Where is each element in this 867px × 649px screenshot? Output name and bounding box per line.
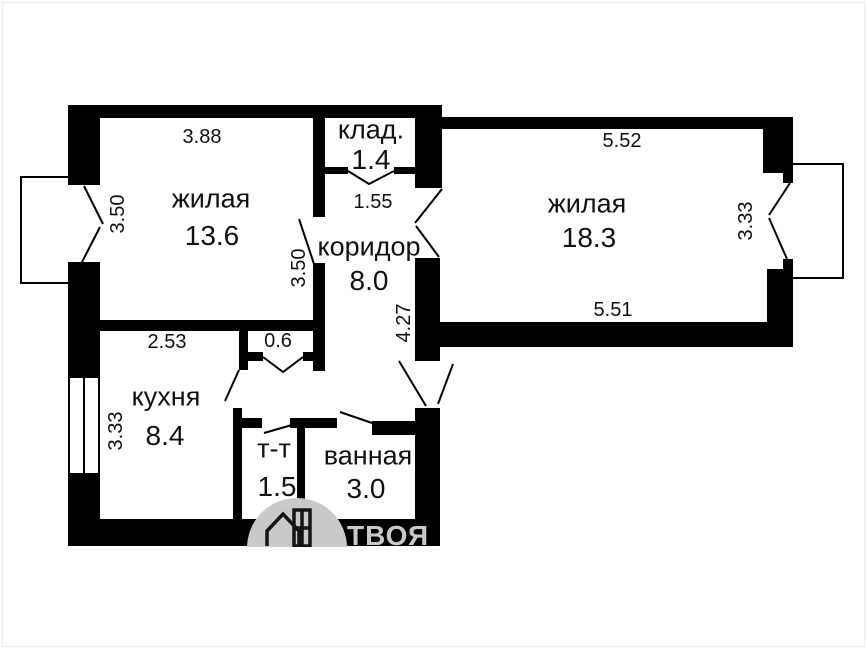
dimension-living2-top: 5.52 xyxy=(603,131,642,151)
room-label-corridor: коридор xyxy=(317,234,420,261)
door-swing-line xyxy=(263,357,303,372)
room-area-living2: 18.3 xyxy=(562,224,617,252)
door-swing-line xyxy=(82,227,100,262)
balcony-left-outline xyxy=(21,177,70,283)
door-window-balcony-lines xyxy=(0,0,867,649)
room-label-closet: клад. xyxy=(338,117,404,144)
dimension-closet-width: 1.55 xyxy=(354,192,393,212)
door-swing-line xyxy=(769,218,787,259)
dimension-corridor-upper: 3.50 xyxy=(289,249,309,288)
house-icon xyxy=(261,504,323,547)
door-swing-line xyxy=(225,370,239,401)
dimension-living2-bottom: 5.51 xyxy=(594,300,633,320)
door-swing-line xyxy=(340,412,372,423)
dimension-living1-width: 3.88 xyxy=(183,127,222,147)
watermark: ТВОЯ xyxy=(243,496,455,547)
room-area-closet: 1.4 xyxy=(352,146,391,174)
door-swing-line xyxy=(438,364,453,404)
door-swing-line xyxy=(769,183,790,215)
door-swing-line xyxy=(415,189,442,223)
watermark-brand-text: ТВОЯ xyxy=(347,522,429,547)
door-swing-line xyxy=(399,361,426,406)
dimension-corridor-lower: 4.27 xyxy=(394,304,414,343)
dimension-kitchen-top: 2.53 xyxy=(148,332,187,352)
balcony-right-outline xyxy=(793,164,843,278)
room-area-corridor: 8.0 xyxy=(350,267,389,295)
floor-plan: жилая 13.6 клад. 1.4 коридор 8.0 жилая 1… xyxy=(0,0,867,649)
room-area-kitchen: 8.4 xyxy=(146,422,185,450)
dimension-living1-depth: 3.50 xyxy=(108,195,128,234)
dimension-kitchen-depth: 3.33 xyxy=(106,412,126,451)
room-label-toilet: т-т xyxy=(257,436,291,463)
door-swing-line xyxy=(264,425,292,433)
dimension-niche: 0.6 xyxy=(264,331,292,351)
room-area-living1: 13.6 xyxy=(185,222,240,250)
dimension-living2-depth: 3.33 xyxy=(736,202,756,241)
room-label-living2: жилая xyxy=(548,191,627,218)
door-swing-line xyxy=(84,186,103,224)
room-label-kitchen: кухня xyxy=(132,384,201,411)
room-label-bathroom: ванная xyxy=(324,443,413,470)
room-label-living1: жилая xyxy=(172,186,251,213)
